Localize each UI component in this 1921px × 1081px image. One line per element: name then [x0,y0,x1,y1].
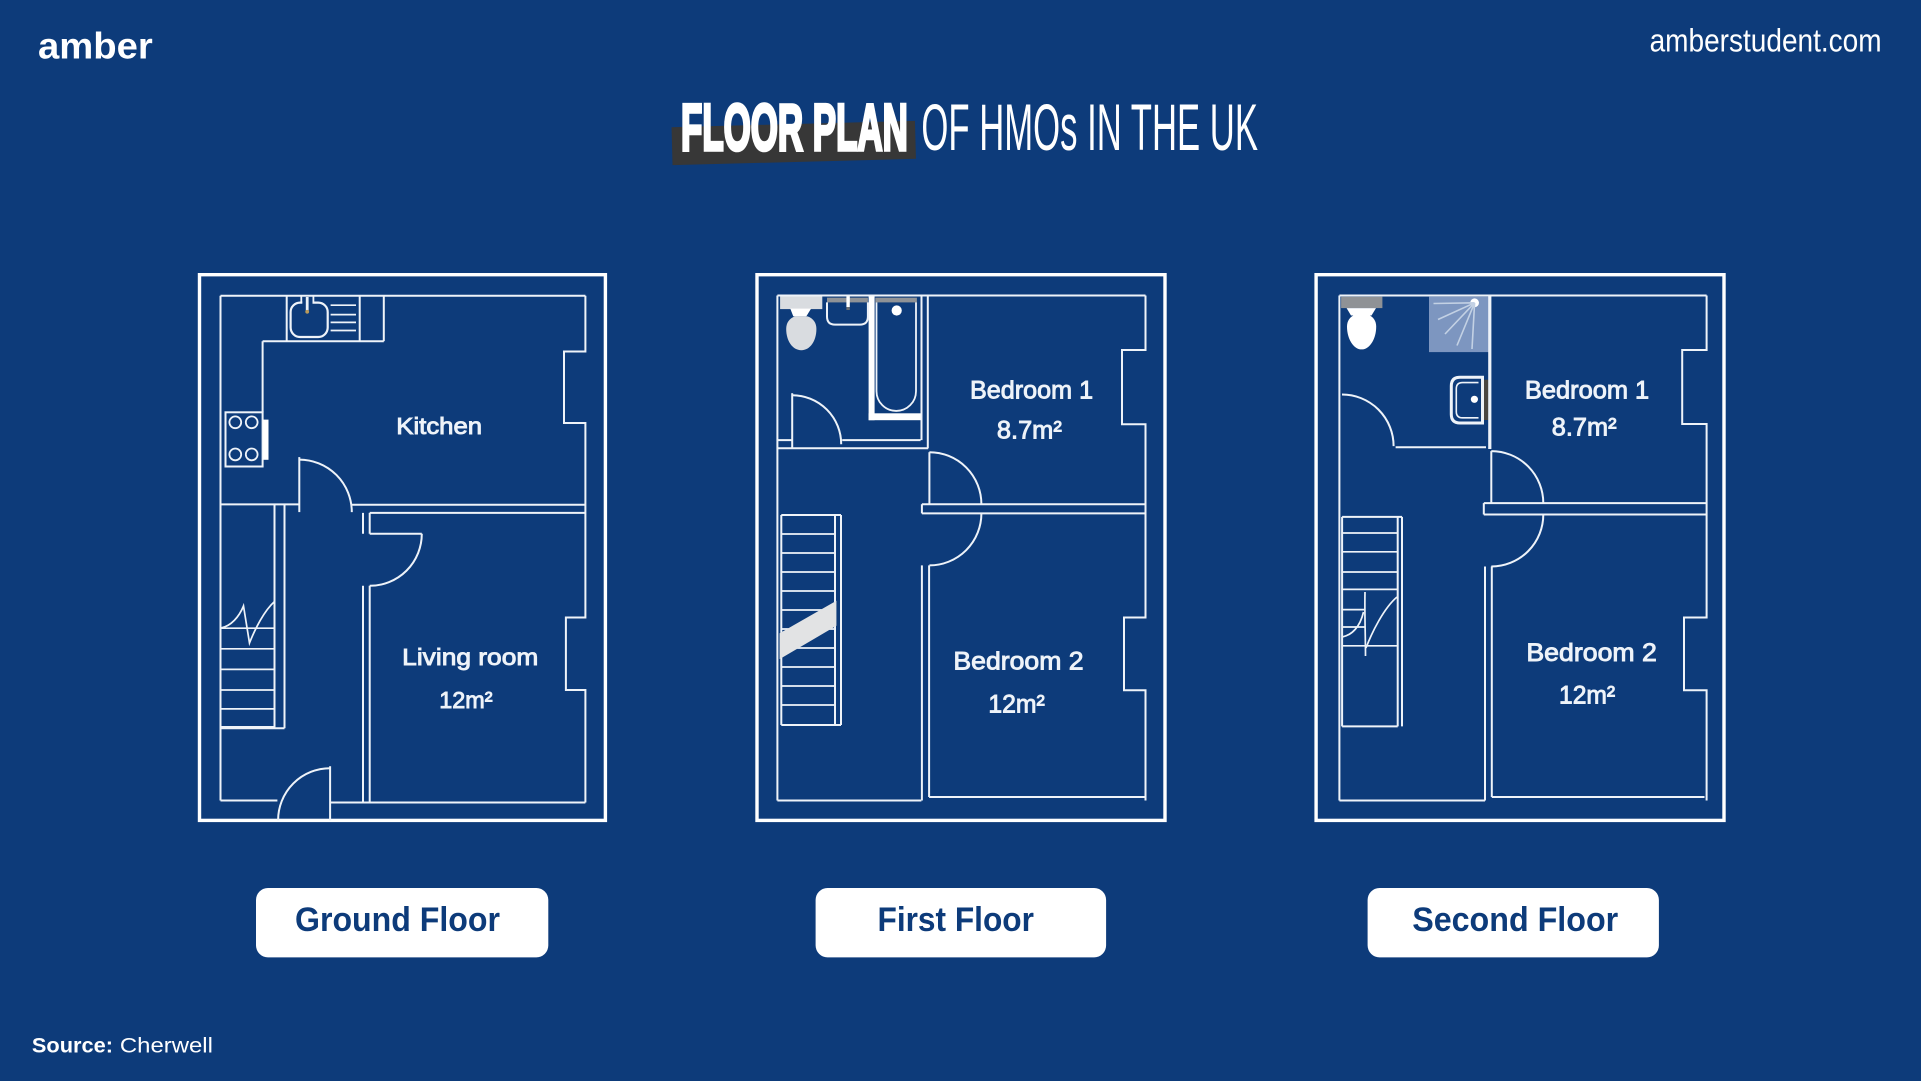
svg-text:Second Floor: Second Floor [1412,901,1618,939]
svg-text:Bedroom 1: Bedroom 1 [1525,377,1649,405]
svg-text:amberstudent.com: amberstudent.com [1650,23,1882,59]
svg-text:Ground Floor: Ground Floor [295,901,500,939]
svg-text:Kitchen: Kitchen [396,413,482,439]
svg-text:FLOOR PLAN: FLOOR PLAN [681,90,908,164]
svg-text:Cherwell: Cherwell [120,1035,213,1058]
svg-text:12m²: 12m² [439,687,492,713]
svg-text:Source:: Source: [32,1035,113,1058]
svg-text:12m²: 12m² [1559,681,1615,709]
svg-text:Living room: Living room [402,644,538,670]
svg-text:12m²: 12m² [988,690,1044,718]
svg-text:amber: amber [38,25,153,66]
svg-text:First Floor: First Floor [878,901,1034,939]
svg-text:OF HMOs IN THE UK: OF HMOs IN THE UK [921,90,1258,164]
svg-text:Bedroom 2: Bedroom 2 [953,648,1083,676]
svg-text:8.7m²: 8.7m² [1552,414,1617,442]
svg-text:8.7m²: 8.7m² [997,417,1062,445]
svg-text:Bedroom 2: Bedroom 2 [1526,639,1657,667]
svg-text:Bedroom 1: Bedroom 1 [970,377,1093,405]
